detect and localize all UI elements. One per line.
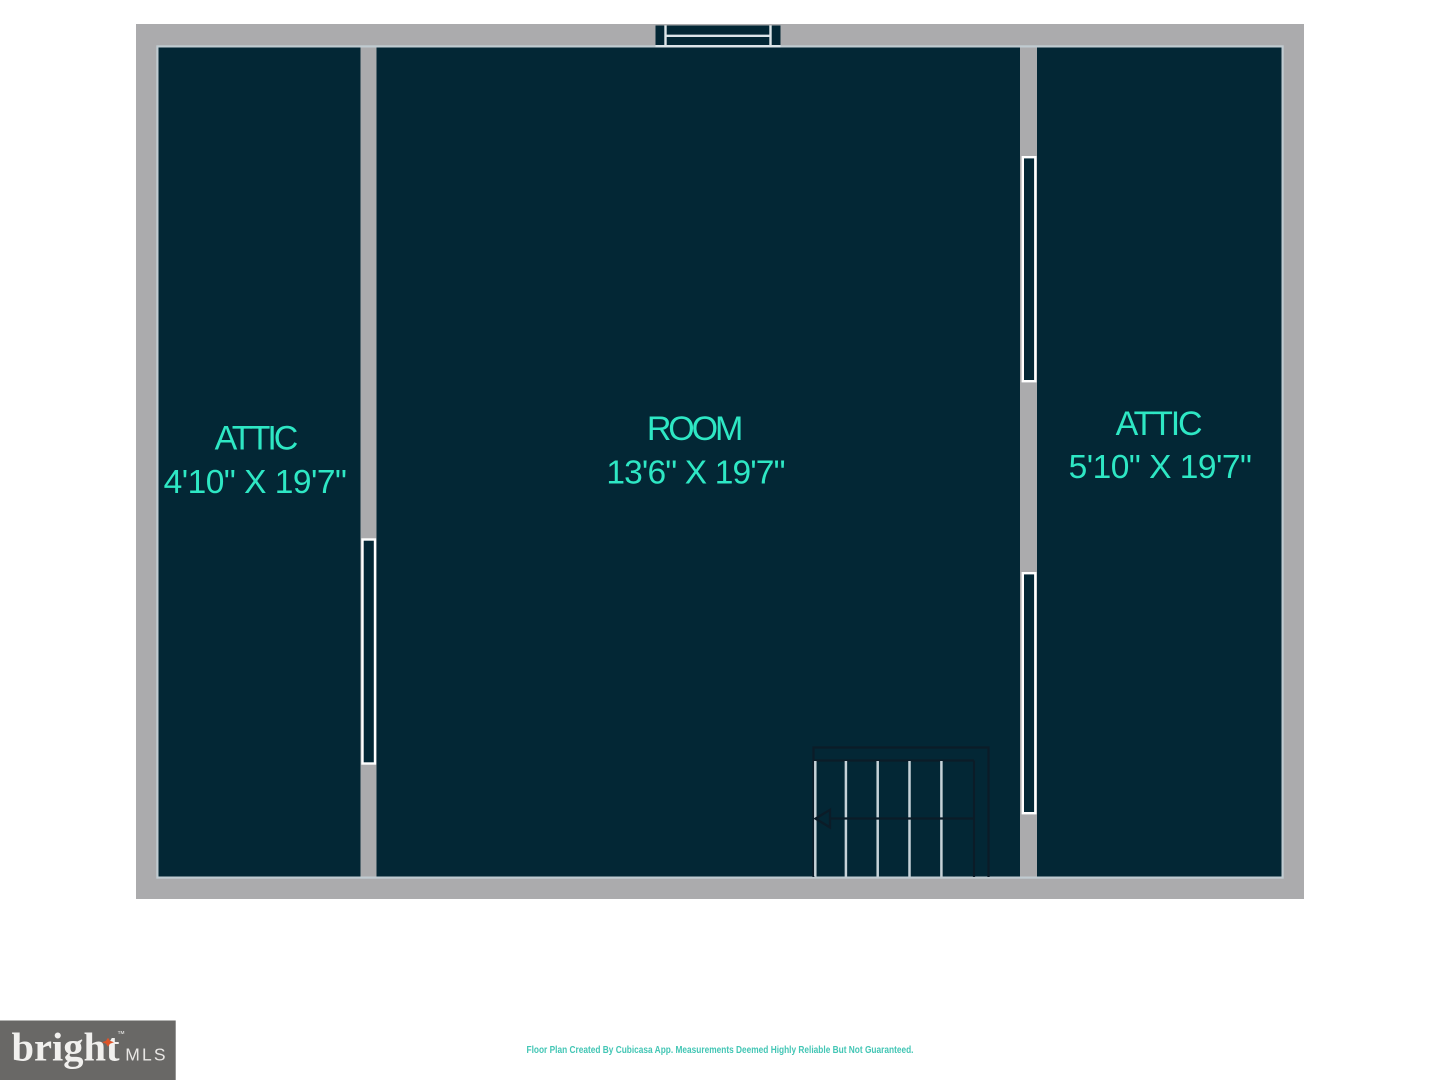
svg-text:ROOM: ROOM (647, 410, 741, 448)
svg-text:ATTIC: ATTIC (215, 420, 298, 458)
svg-text:4'10" X 19'7": 4'10" X 19'7" (164, 464, 347, 501)
svg-text:bright: bright (12, 1025, 121, 1070)
svg-text:Floor Plan Created By Cubicasa: Floor Plan Created By Cubicasa App. Meas… (527, 1045, 914, 1056)
svg-text:ATTIC: ATTIC (1116, 405, 1202, 443)
svg-text:MLS: MLS (125, 1045, 168, 1065)
svg-text:™: ™ (117, 1030, 125, 1039)
svg-text:5'10" X 19'7": 5'10" X 19'7" (1069, 449, 1252, 486)
svg-text:13'6" X 19'7": 13'6" X 19'7" (606, 455, 784, 492)
